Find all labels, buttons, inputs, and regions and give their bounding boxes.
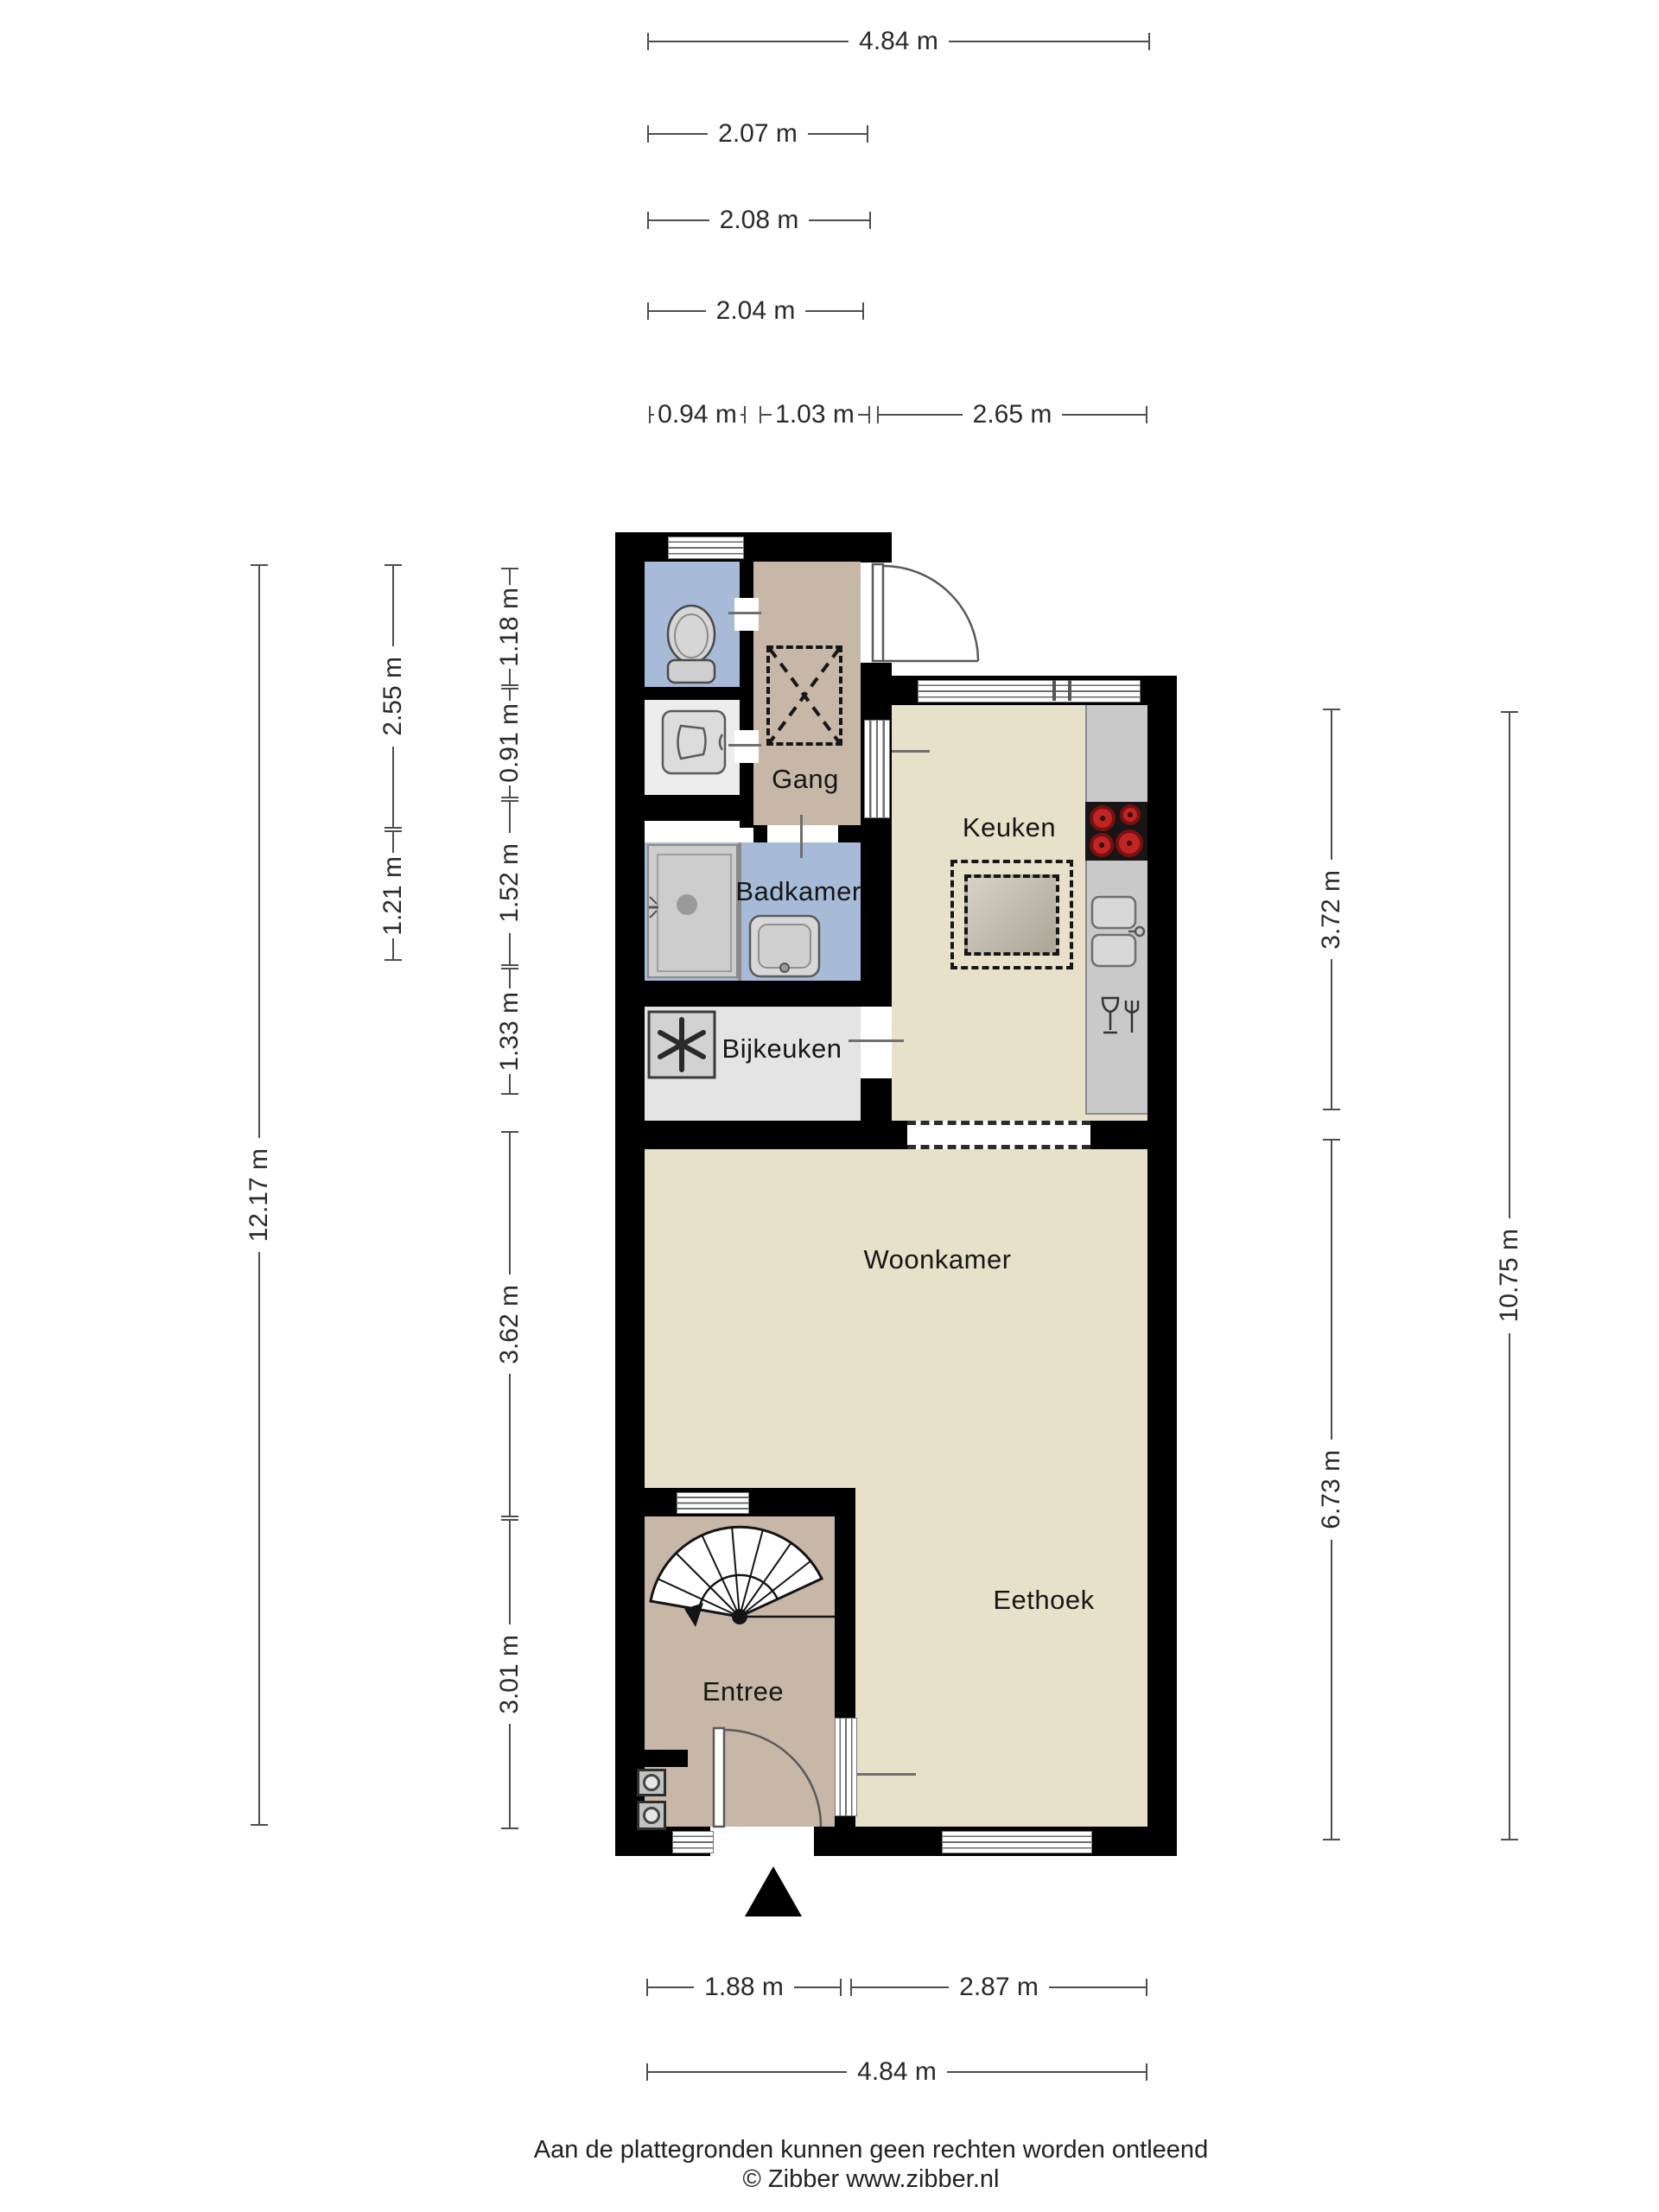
dim-right-1075: 10.75 m — [1493, 711, 1526, 1840]
door-opening-badkamer-left — [645, 821, 740, 842]
toilet-icon — [665, 603, 717, 685]
window-tick — [854, 1773, 916, 1776]
spiral-staircase-icon — [645, 1517, 836, 1657]
wall-top — [615, 532, 892, 562]
window — [918, 680, 1141, 702]
dim-top-484: 4.84 m — [647, 26, 1150, 57]
window — [668, 537, 744, 559]
dim-right-673: 6.73 m — [1315, 1139, 1348, 1840]
meter-icon — [637, 1801, 666, 1830]
wall-washroom-badkamer — [645, 795, 740, 821]
door-swing-icon — [712, 1728, 824, 1830]
wall-right — [1147, 676, 1177, 1856]
room-label-keuken: Keuken — [963, 812, 1056, 843]
door-opening-washroom — [734, 730, 759, 763]
dim-left-091: 0.91 m — [493, 688, 526, 798]
dim-bottom-287: 2.87 m — [850, 1972, 1147, 2003]
door-opening-bijkeuken — [861, 1007, 892, 1078]
dim-bottom-188: 1.88 m — [646, 1972, 842, 2003]
cooktop-icon — [1085, 802, 1147, 861]
door-opening-wc — [734, 598, 759, 631]
open-connection — [907, 1121, 1090, 1149]
door-swing-icon — [871, 563, 980, 668]
dim-top-208: 2.08 m — [647, 205, 871, 236]
door-opening-gang-badkamer — [767, 825, 838, 842]
meter-icon — [637, 1769, 666, 1796]
door-swing-icon — [800, 815, 803, 858]
window — [835, 1718, 857, 1816]
bathroom-sink-icon — [748, 914, 821, 978]
wall-wc-washroom — [645, 687, 740, 700]
dim-left-362: 3.62 m — [493, 1131, 526, 1517]
wall-bijkeuken-keuken — [861, 1078, 892, 1121]
window-tick — [892, 750, 930, 753]
wall-meter-stub — [645, 1750, 688, 1767]
dim-top-207: 2.07 m — [647, 118, 868, 149]
dim-left-121: 1.21 m — [377, 830, 410, 961]
footer-disclaimer: Aan de plattegronden kunnen geen rechten… — [534, 2136, 1208, 2164]
door-opening-front — [710, 1827, 814, 1856]
dim-left-301: 3.01 m — [493, 1519, 526, 1829]
dim-left-133: 1.33 m — [493, 968, 526, 1095]
window — [942, 1831, 1092, 1853]
dim-top-204: 2.04 m — [647, 296, 864, 327]
room-label-entree: Entree — [702, 1676, 784, 1707]
vide-cross — [766, 645, 842, 746]
entrance-arrow-icon — [745, 1866, 802, 1916]
window-mullion — [1052, 680, 1056, 701]
dim-left-152: 1.52 m — [493, 800, 526, 966]
room-label-woonkamer: Woonkamer — [863, 1244, 1011, 1275]
window — [677, 1492, 749, 1514]
wall-left — [615, 532, 645, 1856]
room-label-badkamer: Badkamer — [735, 876, 861, 907]
dim-top-103: 1.03 m — [760, 399, 870, 430]
dim-right-372: 3.72 m — [1315, 709, 1348, 1110]
washbasin-icon — [662, 710, 726, 776]
door-swing-icon — [849, 1039, 904, 1042]
window — [672, 1831, 714, 1853]
dim-bottom-484: 4.84 m — [646, 2056, 1147, 2088]
shower-partition — [738, 842, 741, 981]
door-swing-icon — [728, 744, 761, 747]
wall-keuken-woonkamer — [615, 1121, 1177, 1149]
kitchen-sink-icon — [1090, 895, 1146, 969]
dim-left-255: 2.55 m — [377, 564, 410, 829]
window-mullion — [1068, 680, 1071, 701]
dim-top-265: 2.65 m — [877, 399, 1147, 430]
vide-dashed-icon — [964, 874, 1059, 956]
room-label-bijkeuken: Bijkeuken — [722, 1033, 842, 1065]
floorplan-canvas: Gang Badkamer Bijkeuken Keuken Woonkamer… — [0, 0, 1659, 2212]
fan-icon — [648, 1011, 715, 1078]
wall-badkamer-bijkeuken — [645, 981, 892, 1007]
room-label-gang: Gang — [772, 764, 839, 795]
door-swing-icon — [728, 612, 761, 614]
shower-head-icon — [646, 888, 669, 926]
dishwasher-icon — [1097, 995, 1144, 1037]
dim-left-118: 1.18 m — [493, 568, 526, 686]
dim-top-094: 0.94 m — [649, 399, 746, 430]
footer-credit: © Zibber www.zibber.nl — [743, 2165, 1000, 2194]
dim-left-1217: 12.17 m — [243, 564, 276, 1826]
window — [864, 720, 890, 818]
room-label-eethoek: Eethoek — [993, 1585, 1094, 1616]
